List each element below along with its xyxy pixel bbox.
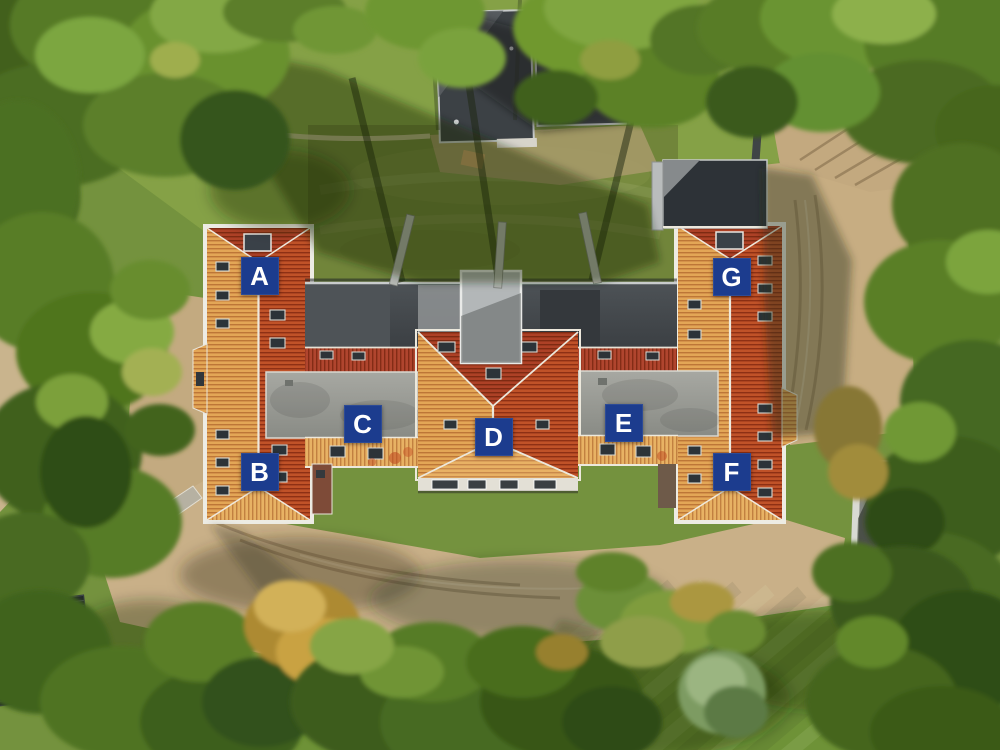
aerial-photo (0, 0, 1000, 750)
unit-letter: G (721, 264, 741, 290)
unit-letter: F (724, 459, 740, 485)
unit-letter: E (615, 410, 632, 436)
left-wing-skylight (244, 234, 271, 251)
right-wing-skylight (716, 232, 743, 249)
unit-label-e[interactable]: E (605, 404, 643, 442)
unit-letter: A (250, 263, 269, 289)
annex-south-right (658, 464, 676, 508)
unit-label-f[interactable]: F (713, 453, 751, 491)
annex-north-right (652, 160, 767, 230)
unit-label-d[interactable]: D (475, 418, 513, 456)
unit-label-g[interactable]: G (713, 258, 751, 296)
facade-south (418, 478, 578, 492)
unit-letter: C (353, 411, 372, 437)
aerial-photo-stage: A B C D E F G (0, 0, 1000, 750)
unit-label-b[interactable]: B (241, 453, 279, 491)
unit-letter: B (250, 459, 269, 485)
rooftop-tower (461, 271, 521, 363)
unit-letter: D (484, 424, 503, 450)
unit-label-c[interactable]: C (344, 405, 382, 443)
unit-label-a[interactable]: A (241, 257, 279, 295)
